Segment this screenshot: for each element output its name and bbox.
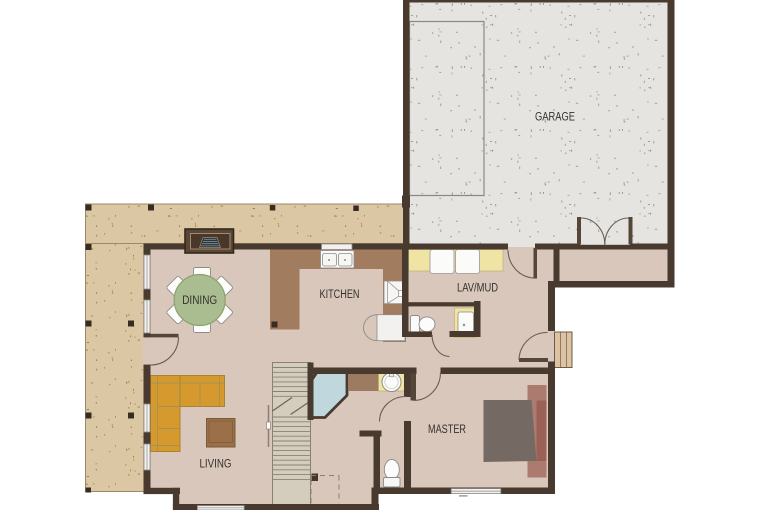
svg-text:MASTER: MASTER: [428, 424, 466, 436]
svg-text:DINING: DINING: [182, 295, 217, 307]
svg-text:KITCHEN: KITCHEN: [320, 289, 360, 301]
svg-text:GARAGE: GARAGE: [535, 112, 575, 124]
svg-text:LAV/MUD: LAV/MUD: [457, 283, 498, 295]
svg-text:LIVING: LIVING: [200, 459, 232, 471]
